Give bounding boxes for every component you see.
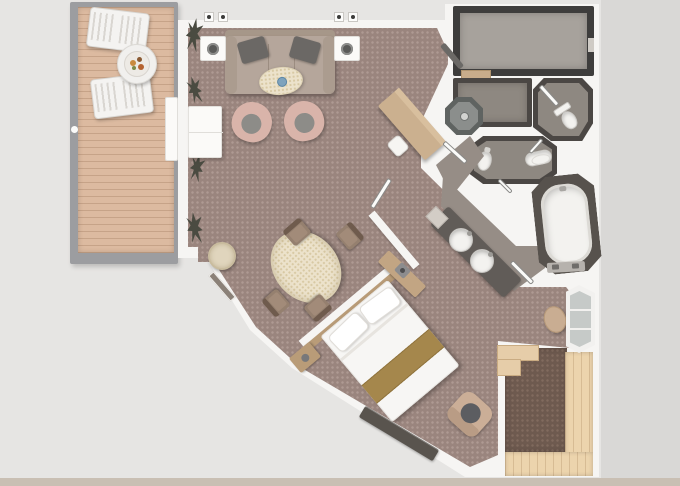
background-right-band	[601, 0, 680, 486]
bracket-knob	[399, 267, 406, 274]
decor-bowl	[277, 76, 288, 87]
table-lamp	[341, 43, 353, 55]
veranda	[70, 2, 178, 264]
window-latch	[218, 12, 228, 22]
window-mullion	[570, 328, 591, 330]
table-lamp	[300, 352, 311, 363]
railing-light	[71, 126, 78, 133]
background-bottom-band	[0, 478, 680, 486]
sofa-arm	[225, 36, 237, 94]
bathtub	[530, 172, 603, 276]
closet-handle	[588, 38, 594, 52]
vanity-sink	[470, 249, 494, 273]
shower	[445, 97, 483, 135]
window-mullion	[570, 309, 591, 311]
end-table	[334, 36, 360, 61]
step-handle	[572, 263, 579, 268]
window-latch	[334, 12, 344, 22]
lounger-backrest-slats	[91, 12, 116, 42]
food-item	[137, 57, 142, 62]
side-table	[208, 242, 236, 270]
aft-deck-planks	[505, 452, 593, 476]
faucet	[488, 252, 493, 257]
tub-step	[547, 261, 585, 273]
window-latch	[348, 12, 358, 22]
end-table	[200, 36, 226, 61]
bathtub-basin	[539, 182, 594, 266]
step-handle	[552, 264, 559, 269]
bay-window-glass	[570, 291, 591, 347]
food-item	[132, 66, 136, 70]
latch-dot	[351, 15, 355, 19]
shower-drain	[460, 112, 469, 121]
lounger-seat-slats	[118, 15, 144, 46]
bay-window	[566, 285, 595, 353]
latch-dot	[337, 15, 341, 19]
deck-steps	[497, 359, 521, 376]
latch-dot	[221, 15, 225, 19]
bathtub-faucet	[559, 186, 566, 192]
window-latch	[204, 12, 214, 22]
sideboard	[188, 106, 222, 158]
latch-dot	[207, 15, 211, 19]
walk-in-closet	[453, 6, 594, 76]
food-plate	[124, 51, 150, 77]
closet-floor	[460, 13, 587, 69]
food-item	[138, 64, 144, 70]
faucet	[467, 231, 472, 236]
console-seam	[189, 132, 223, 133]
floor-plan-canvas	[0, 0, 680, 486]
sliding-door	[165, 97, 178, 161]
table-lamp	[207, 43, 219, 55]
vanity-sink	[449, 228, 473, 252]
lounger-backrest-slats	[94, 82, 119, 112]
veranda-table	[117, 44, 157, 84]
